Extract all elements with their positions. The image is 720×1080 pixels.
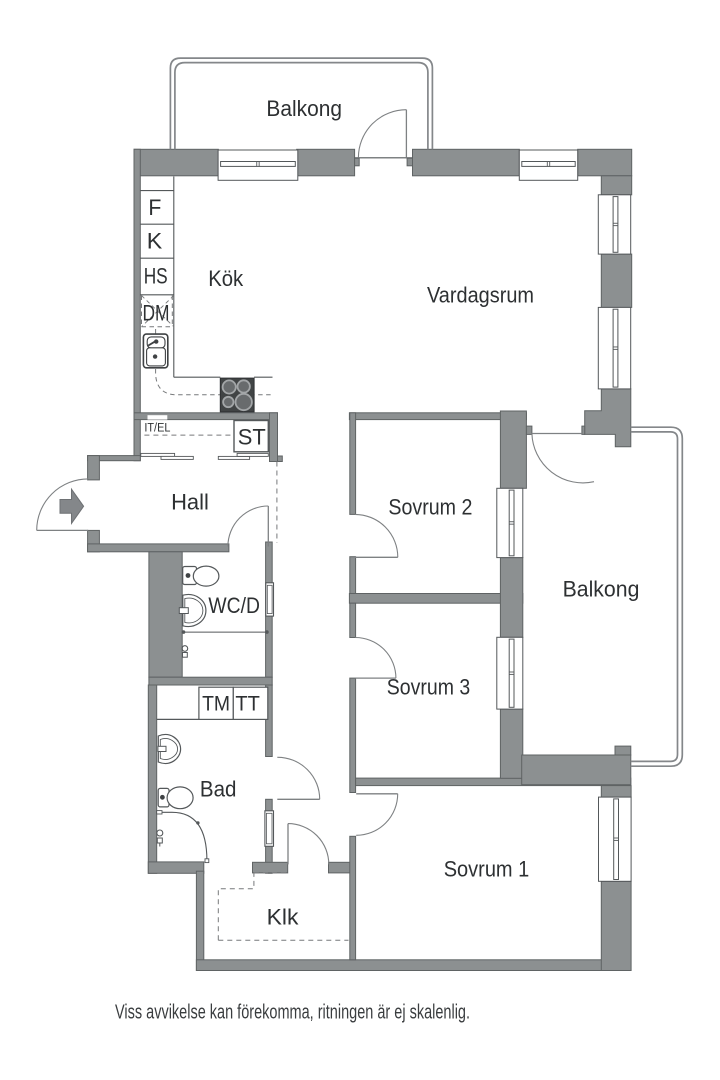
svg-text:Sovrum 2: Sovrum 2	[388, 494, 472, 519]
svg-text:ST: ST	[238, 424, 266, 449]
svg-text:Vardagsrum: Vardagsrum	[427, 282, 534, 307]
svg-text:Viss avvikelse kan förekomma,: Viss avvikelse kan förekomma, ritningen …	[115, 1002, 470, 1024]
svg-text:Klk: Klk	[267, 904, 300, 929]
svg-text:Sovrum 1: Sovrum 1	[444, 856, 530, 881]
svg-text:TT: TT	[235, 692, 260, 715]
svg-text:DM: DM	[143, 301, 170, 326]
svg-text:WC/D: WC/D	[208, 593, 260, 618]
svg-text:Hall: Hall	[171, 490, 209, 515]
svg-text:Kök: Kök	[208, 266, 244, 291]
svg-text:K: K	[147, 229, 163, 254]
svg-text:HS: HS	[144, 264, 168, 289]
svg-text:F: F	[148, 195, 161, 220]
svg-text:Balkong: Balkong	[266, 96, 342, 121]
svg-text:Bad: Bad	[200, 776, 237, 801]
svg-text:Balkong: Balkong	[563, 577, 640, 602]
svg-text:TM: TM	[202, 692, 230, 715]
svg-text:IT/EL: IT/EL	[144, 423, 171, 435]
svg-text:Sovrum 3: Sovrum 3	[387, 674, 470, 699]
